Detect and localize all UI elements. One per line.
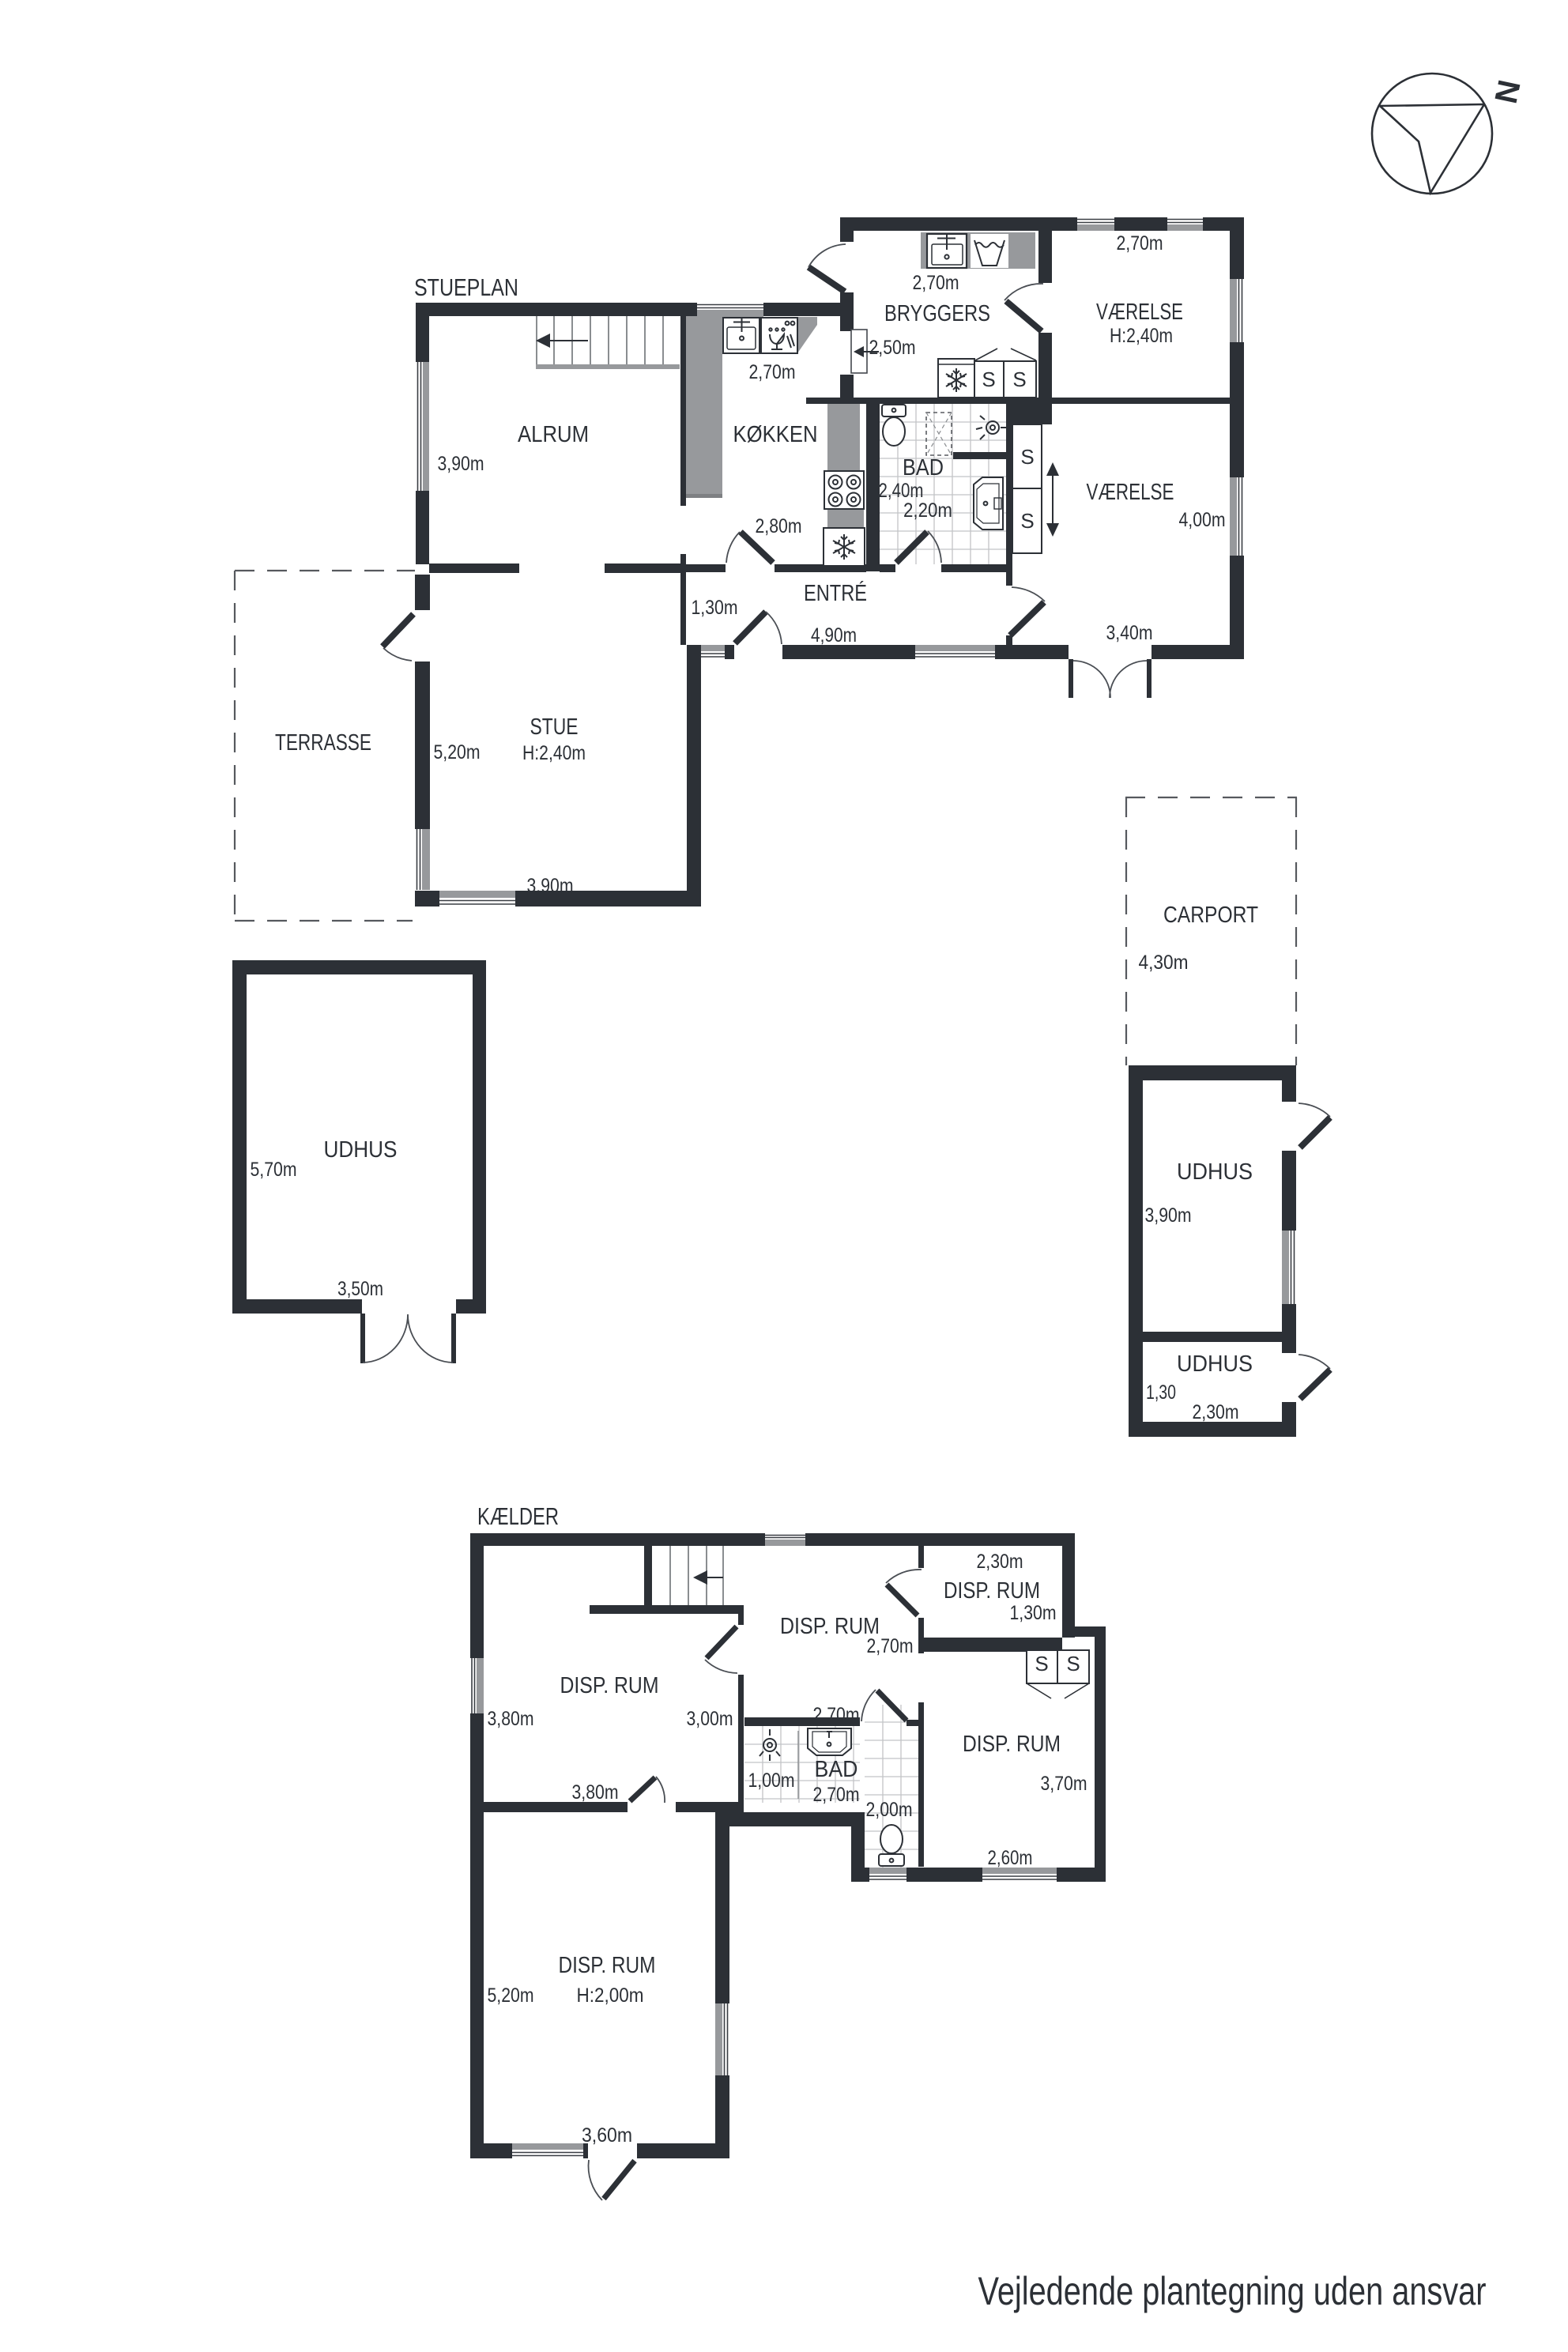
svg-text:VÆRELSE: VÆRELSE bbox=[1096, 300, 1183, 325]
svg-text:BAD: BAD bbox=[815, 1757, 858, 1782]
svg-text:KØKKEN: KØKKEN bbox=[733, 422, 818, 447]
svg-text:1,00m: 1,00m bbox=[748, 1770, 795, 1792]
svg-text:3,70m: 3,70m bbox=[1041, 1773, 1087, 1795]
svg-text:3,90m: 3,90m bbox=[438, 453, 484, 475]
svg-text:ENTRÉ: ENTRÉ bbox=[804, 580, 867, 606]
svg-text:5,20m: 5,20m bbox=[488, 1984, 534, 2007]
svg-text:2,30m: 2,30m bbox=[1193, 1401, 1239, 1423]
svg-text:UDHUS: UDHUS bbox=[1177, 1159, 1253, 1185]
svg-text:TERRASSE: TERRASSE bbox=[275, 730, 371, 756]
svg-text:2,80m: 2,80m bbox=[756, 515, 802, 537]
svg-text:5,20m: 5,20m bbox=[434, 741, 481, 763]
svg-text:S: S bbox=[1012, 367, 1026, 391]
svg-text:3,40m: 3,40m bbox=[1106, 622, 1153, 644]
svg-text:STUEPLAN: STUEPLAN bbox=[414, 273, 518, 301]
svg-text:KÆLDER: KÆLDER bbox=[477, 1502, 559, 1530]
svg-text:4,90m: 4,90m bbox=[811, 624, 857, 646]
svg-text:2,70m: 2,70m bbox=[1117, 232, 1163, 254]
svg-text:S: S bbox=[1020, 509, 1034, 533]
svg-text:BRYGGERS: BRYGGERS bbox=[884, 301, 990, 326]
svg-text:S: S bbox=[1066, 1652, 1080, 1675]
svg-text:DISP. RUM: DISP. RUM bbox=[963, 1732, 1061, 1757]
svg-text:H:2,40m: H:2,40m bbox=[1110, 325, 1173, 347]
svg-text:H:2,00m: H:2,00m bbox=[577, 1984, 644, 2007]
svg-text:2,70m: 2,70m bbox=[913, 272, 959, 294]
svg-text:4,00m: 4,00m bbox=[1179, 509, 1226, 531]
svg-text:3,80m: 3,80m bbox=[488, 1708, 534, 1730]
svg-text:3,00m: 3,00m bbox=[687, 1708, 733, 1730]
svg-text:Vejledende plantegning uden an: Vejledende plantegning uden ansvar bbox=[978, 2269, 1487, 2313]
svg-text:5,70m: 5,70m bbox=[251, 1159, 297, 1181]
svg-text:DISP. RUM: DISP. RUM bbox=[560, 1673, 659, 1698]
svg-text:2,60m: 2,60m bbox=[988, 1847, 1033, 1869]
svg-text:VÆRELSE: VÆRELSE bbox=[1087, 480, 1174, 505]
svg-text:DISP. RUM: DISP. RUM bbox=[944, 1578, 1040, 1604]
svg-text:ALRUM: ALRUM bbox=[518, 422, 589, 447]
svg-text:2,70m: 2,70m bbox=[813, 1784, 860, 1806]
svg-text:3,80m: 3,80m bbox=[572, 1781, 619, 1804]
svg-text:CARPORT: CARPORT bbox=[1163, 903, 1258, 928]
svg-text:2,70m: 2,70m bbox=[867, 1635, 914, 1657]
svg-text:S: S bbox=[1020, 445, 1034, 469]
svg-text:1,30: 1,30 bbox=[1146, 1381, 1176, 1404]
svg-text:UDHUS: UDHUS bbox=[324, 1137, 398, 1163]
svg-text:2,70m: 2,70m bbox=[749, 361, 796, 383]
svg-text:STUE: STUE bbox=[530, 714, 579, 740]
svg-text:S: S bbox=[1035, 1652, 1048, 1675]
svg-text:4,30m: 4,30m bbox=[1139, 952, 1189, 974]
svg-text:1,30m: 1,30m bbox=[692, 597, 738, 619]
svg-text:2,00m: 2,00m bbox=[866, 1799, 913, 1821]
svg-text:1,30m: 1,30m bbox=[1010, 1602, 1057, 1624]
svg-text:2,40m: 2,40m bbox=[879, 480, 924, 502]
svg-text:H:2,40m: H:2,40m bbox=[522, 742, 586, 764]
svg-text:N: N bbox=[1487, 77, 1526, 106]
svg-text:DISP. RUM: DISP. RUM bbox=[559, 1953, 656, 1978]
svg-text:3,60m: 3,60m bbox=[582, 2124, 632, 2147]
svg-text:BAD: BAD bbox=[903, 455, 944, 481]
svg-text:DISP. RUM: DISP. RUM bbox=[780, 1614, 880, 1639]
svg-text:2,30m: 2,30m bbox=[977, 1551, 1023, 1573]
svg-text:2,20m: 2,20m bbox=[903, 499, 952, 522]
svg-text:3,90m: 3,90m bbox=[1145, 1204, 1192, 1227]
svg-text:2,50m: 2,50m bbox=[869, 337, 916, 359]
svg-text:3,50m: 3,50m bbox=[337, 1278, 383, 1300]
svg-text:2,70m: 2,70m bbox=[813, 1704, 860, 1726]
svg-text:S: S bbox=[982, 367, 995, 391]
svg-text:UDHUS: UDHUS bbox=[1177, 1351, 1253, 1377]
svg-text:3,90m: 3,90m bbox=[527, 875, 574, 897]
